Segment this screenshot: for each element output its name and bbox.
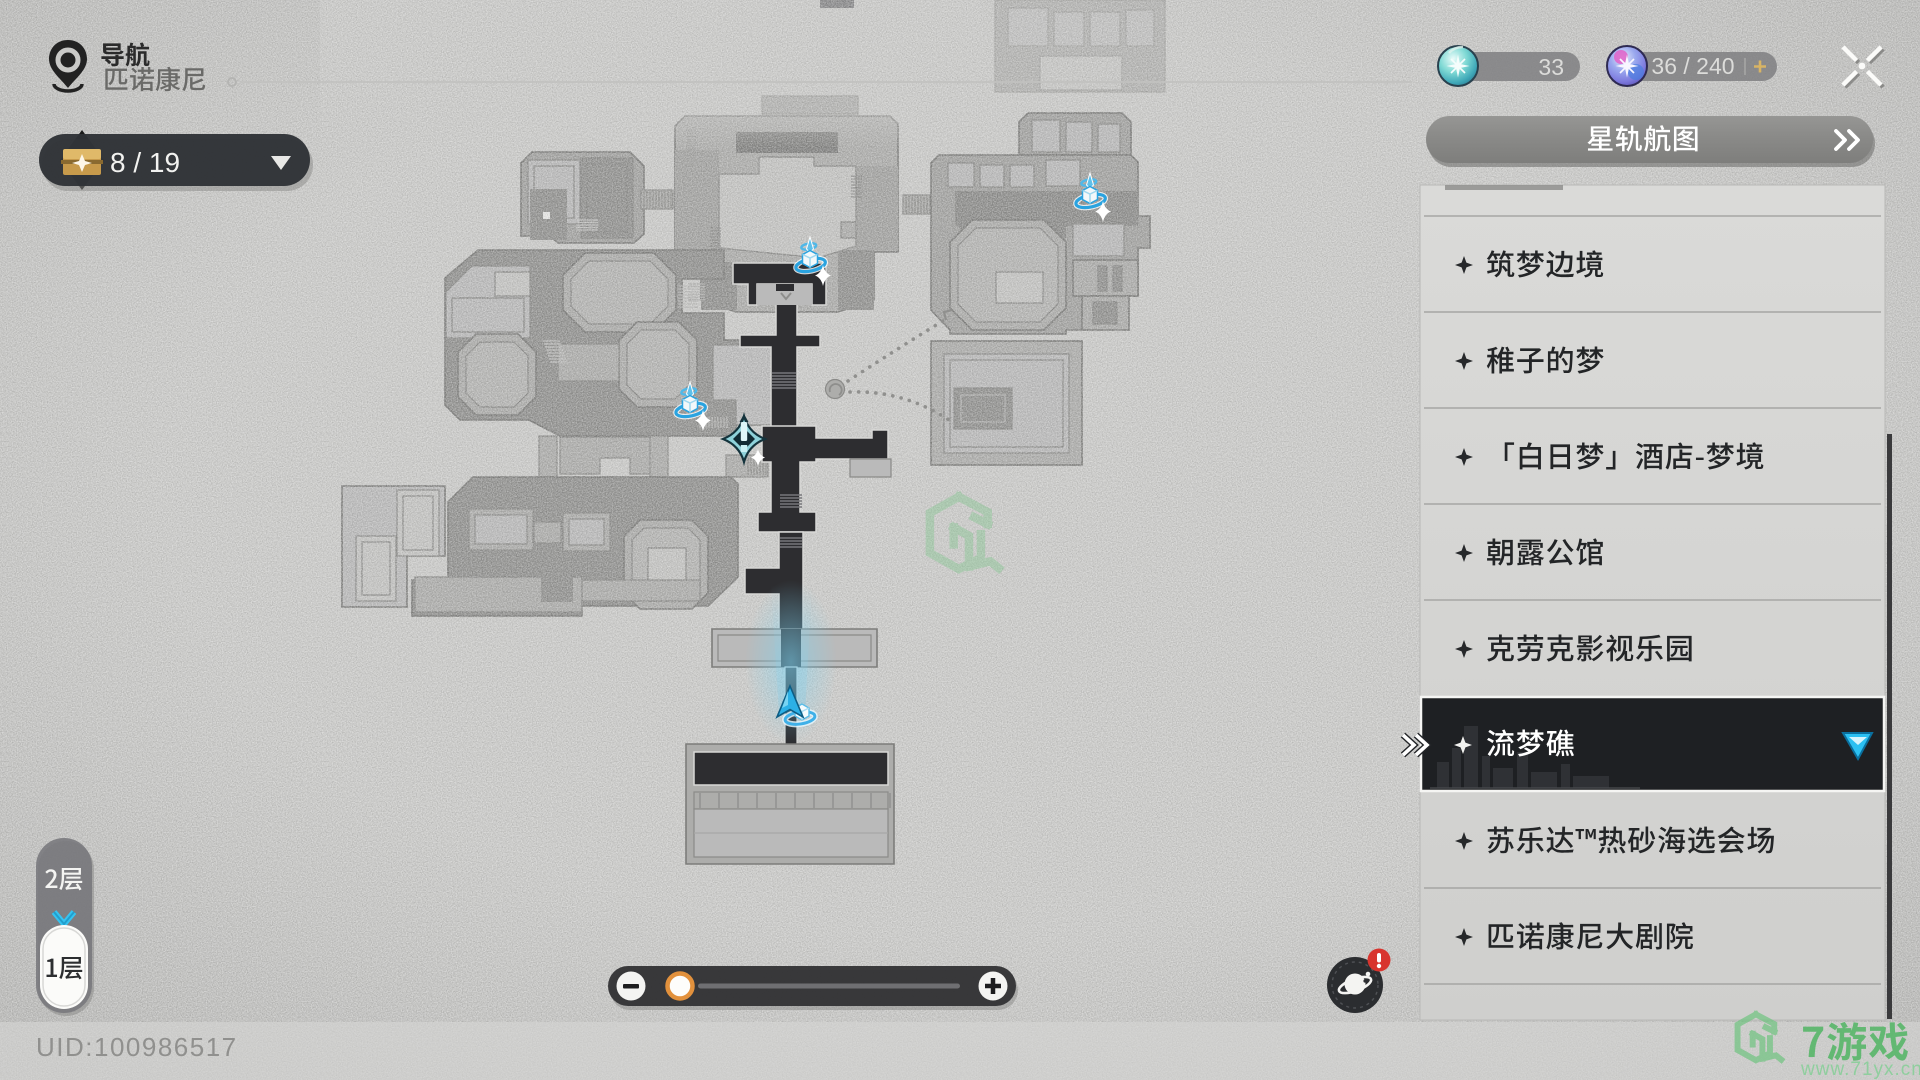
svg-text:UID:100986517: UID:100986517 bbox=[36, 1032, 238, 1062]
svg-text:www.71yx.cn: www.71yx.cn bbox=[1800, 1059, 1920, 1080]
svg-text:36 / 240: 36 / 240 bbox=[1651, 53, 1734, 79]
svg-text:33: 33 bbox=[1538, 54, 1564, 80]
svg-text:8 / 19: 8 / 19 bbox=[110, 147, 180, 178]
